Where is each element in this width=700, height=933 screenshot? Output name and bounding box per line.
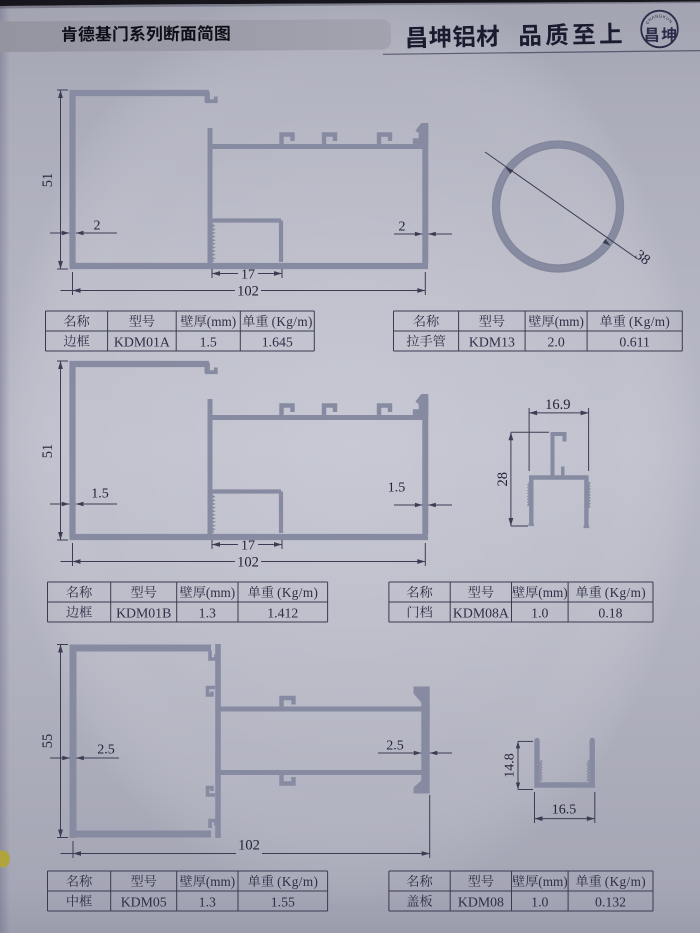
svg-text:KDM01B: KDM01B bbox=[116, 605, 171, 620]
svg-text:51: 51 bbox=[40, 173, 56, 188]
svg-text:(Kg/m): (Kg/m) bbox=[605, 874, 646, 889]
svg-text:14.8: 14.8 bbox=[503, 753, 518, 778]
svg-text:17: 17 bbox=[241, 268, 255, 283]
svg-text:102: 102 bbox=[238, 838, 260, 854]
svg-text:1.645: 1.645 bbox=[262, 334, 293, 349]
svg-text:KDM05: KDM05 bbox=[121, 894, 167, 909]
svg-text:(mm): (mm) bbox=[206, 585, 235, 600]
svg-text:KDM01A: KDM01A bbox=[114, 334, 170, 349]
svg-text:1.55: 1.55 bbox=[271, 894, 295, 909]
svg-text:51: 51 bbox=[40, 444, 56, 459]
svg-text:0.18: 0.18 bbox=[598, 605, 622, 620]
svg-text:(mm): (mm) bbox=[555, 314, 584, 329]
svg-text:(mm): (mm) bbox=[538, 874, 567, 889]
svg-text:(mm): (mm) bbox=[538, 585, 567, 600]
svg-text:(Kg/m): (Kg/m) bbox=[272, 314, 313, 329]
svg-text:2.0: 2.0 bbox=[547, 334, 564, 349]
svg-text:KDM13: KDM13 bbox=[469, 334, 515, 349]
svg-text:2: 2 bbox=[94, 219, 101, 234]
svg-text:0.132: 0.132 bbox=[595, 894, 626, 909]
svg-text:KDM08: KDM08 bbox=[458, 894, 504, 909]
svg-text:2: 2 bbox=[399, 220, 406, 235]
svg-text:(mm): (mm) bbox=[207, 314, 236, 329]
svg-text:(Kg/m): (Kg/m) bbox=[277, 874, 318, 889]
svg-text:KDM08A: KDM08A bbox=[453, 605, 509, 620]
svg-text:(Kg/m): (Kg/m) bbox=[605, 585, 646, 600]
svg-text:0.611: 0.611 bbox=[619, 334, 650, 349]
svg-text:17: 17 bbox=[241, 539, 255, 554]
svg-text:28: 28 bbox=[495, 472, 511, 487]
svg-text:(mm): (mm) bbox=[206, 874, 235, 889]
svg-text:1.412: 1.412 bbox=[267, 605, 298, 620]
svg-text:16.5: 16.5 bbox=[552, 803, 577, 818]
svg-text:(Kg/m): (Kg/m) bbox=[629, 314, 670, 329]
svg-text:2.5: 2.5 bbox=[97, 743, 115, 758]
svg-text:1.0: 1.0 bbox=[531, 605, 548, 620]
svg-text:2.5: 2.5 bbox=[386, 739, 404, 754]
svg-text:(Kg/m): (Kg/m) bbox=[277, 585, 318, 600]
svg-text:1.5: 1.5 bbox=[200, 334, 217, 349]
svg-text:16.9: 16.9 bbox=[545, 397, 570, 413]
svg-text:102: 102 bbox=[237, 284, 259, 300]
svg-text:102: 102 bbox=[237, 555, 259, 571]
svg-text:1.5: 1.5 bbox=[91, 487, 109, 502]
svg-text:1.3: 1.3 bbox=[199, 605, 216, 620]
svg-text:1.5: 1.5 bbox=[388, 481, 406, 496]
svg-text:55: 55 bbox=[40, 734, 56, 749]
svg-text:1.0: 1.0 bbox=[531, 894, 548, 909]
svg-text:1.3: 1.3 bbox=[199, 894, 216, 909]
